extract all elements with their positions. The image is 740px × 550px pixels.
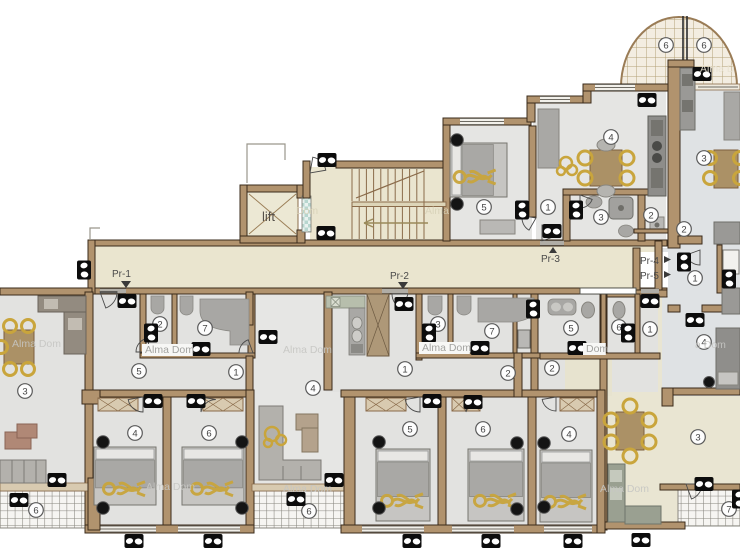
svg-text:2: 2: [549, 363, 554, 374]
svg-text:Alma D: Alma D: [700, 63, 735, 75]
svg-text:3: 3: [701, 153, 706, 164]
svg-text:Alma Dom: Alma Dom: [12, 338, 61, 350]
svg-text:6: 6: [663, 40, 668, 51]
svg-text:Alma Dom: Alma Dom: [600, 483, 649, 495]
svg-text:6: 6: [33, 505, 38, 516]
svg-text:Pr-1: Pr-1: [112, 269, 131, 280]
svg-text:2: 2: [681, 224, 686, 235]
svg-text:1: 1: [233, 367, 238, 378]
svg-text:6: 6: [206, 428, 211, 439]
svg-text:1: 1: [647, 324, 652, 335]
svg-text:3: 3: [695, 432, 700, 443]
svg-text:6: 6: [306, 506, 311, 517]
svg-text:Alma Dom: Alma Dom: [422, 342, 471, 354]
svg-text:5: 5: [481, 202, 486, 213]
svg-text:4: 4: [566, 429, 571, 440]
svg-text:5: 5: [407, 424, 412, 435]
svg-text:7: 7: [489, 326, 494, 337]
svg-text:2: 2: [157, 319, 162, 330]
svg-text:3: 3: [598, 212, 603, 223]
svg-text:7: 7: [726, 504, 731, 515]
svg-text:1: 1: [692, 273, 697, 284]
svg-text:4: 4: [608, 132, 613, 143]
svg-text:7: 7: [202, 323, 207, 334]
svg-text:Pr-3: Pr-3: [541, 254, 560, 265]
svg-text:Alma: Alma: [425, 205, 449, 217]
svg-text:1: 1: [545, 202, 550, 213]
svg-text:Alma Dom: Alma Dom: [283, 483, 332, 495]
svg-text:5: 5: [136, 366, 141, 377]
svg-text:Pr-4: Pr-4: [640, 256, 659, 267]
svg-text:4: 4: [132, 428, 137, 439]
svg-text:Alma Dom: Alma Dom: [283, 344, 332, 356]
svg-text:2: 2: [505, 368, 510, 379]
svg-text:Pr-5: Pr-5: [640, 271, 659, 282]
svg-text:Dom: Dom: [296, 205, 318, 217]
svg-text:a Dom: a Dom: [695, 339, 726, 351]
svg-text:3: 3: [22, 386, 27, 397]
svg-text:lift: lift: [262, 209, 275, 224]
svg-text:1: 1: [402, 364, 407, 375]
svg-text:6: 6: [480, 424, 485, 435]
svg-text:Pr-2: Pr-2: [390, 271, 409, 282]
svg-text:6: 6: [616, 322, 621, 333]
svg-text:5: 5: [568, 323, 573, 334]
svg-text:Dom: Dom: [586, 343, 608, 355]
svg-text:Alma Dom: Alma Dom: [146, 481, 195, 493]
svg-text:2: 2: [648, 210, 653, 221]
svg-text:4: 4: [310, 383, 315, 394]
svg-text:Alma Dom: Alma Dom: [145, 344, 194, 356]
svg-text:3: 3: [435, 319, 440, 330]
svg-text:6: 6: [701, 40, 706, 51]
